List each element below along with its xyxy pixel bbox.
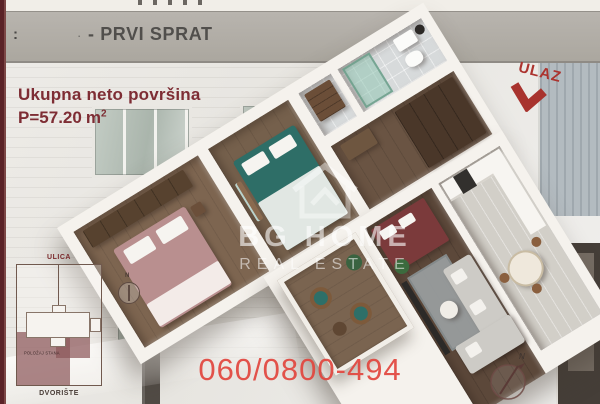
chair-cushion-teal	[351, 304, 370, 323]
header-dot-mark: ·	[77, 28, 81, 43]
area-unit: m	[86, 108, 101, 127]
courtyard-label: DVORIŠTE	[16, 390, 102, 397]
balcony-plant	[343, 251, 365, 273]
street-label: ULICA	[16, 254, 102, 261]
phone-number: 060/0800-494	[150, 352, 450, 388]
area-unit-sup: 2	[101, 108, 107, 119]
cropped-text-remnant	[138, 0, 204, 5]
pillow	[155, 215, 189, 244]
area-title: Ukupna neto površina	[18, 85, 201, 105]
area-info: Ukupna neto površina P=57.20m2	[18, 85, 201, 128]
sofa-cushion	[469, 298, 487, 316]
compass-north-label: N	[519, 352, 525, 361]
building-footprint-notch	[50, 337, 66, 347]
wicker-chair	[306, 283, 336, 313]
sofa-cushion	[450, 268, 468, 286]
building-footprint-stub	[90, 318, 101, 332]
compass-icon: N	[487, 352, 537, 404]
pillow	[241, 151, 270, 177]
flyer-canvas: : · - PRVI SPRAT	[0, 0, 600, 404]
area-value: 57.20	[39, 108, 82, 127]
left-accent-stripe	[0, 0, 6, 404]
building-footprint	[26, 312, 90, 338]
building-footprint-notch	[52, 305, 66, 313]
pillow	[268, 134, 297, 160]
chair-cushion-teal	[311, 289, 330, 308]
pillow	[398, 212, 417, 229]
sofa-cushion	[464, 341, 482, 359]
entrance-arrow-icon	[506, 80, 549, 119]
area-prefix: P=	[18, 108, 39, 127]
balcony-table	[330, 319, 349, 338]
area-value-line: P=57.20m2	[18, 108, 201, 128]
pillow	[379, 224, 398, 241]
wicker-chair	[346, 298, 376, 328]
header-bar: : · - PRVI SPRAT	[0, 11, 600, 63]
floor-title: - PRVI SPRAT	[88, 24, 213, 45]
position-label: POLOŽAJ STANA	[24, 352, 85, 356]
header-left-mark: :	[13, 26, 18, 43]
site-compass-north-label: N	[125, 273, 129, 279]
site-plan: ULICA POLOŽAJ STANA DVORIŠTE N	[10, 252, 142, 404]
site-compass-needle	[128, 285, 130, 301]
top-cream-strip	[0, 0, 600, 11]
